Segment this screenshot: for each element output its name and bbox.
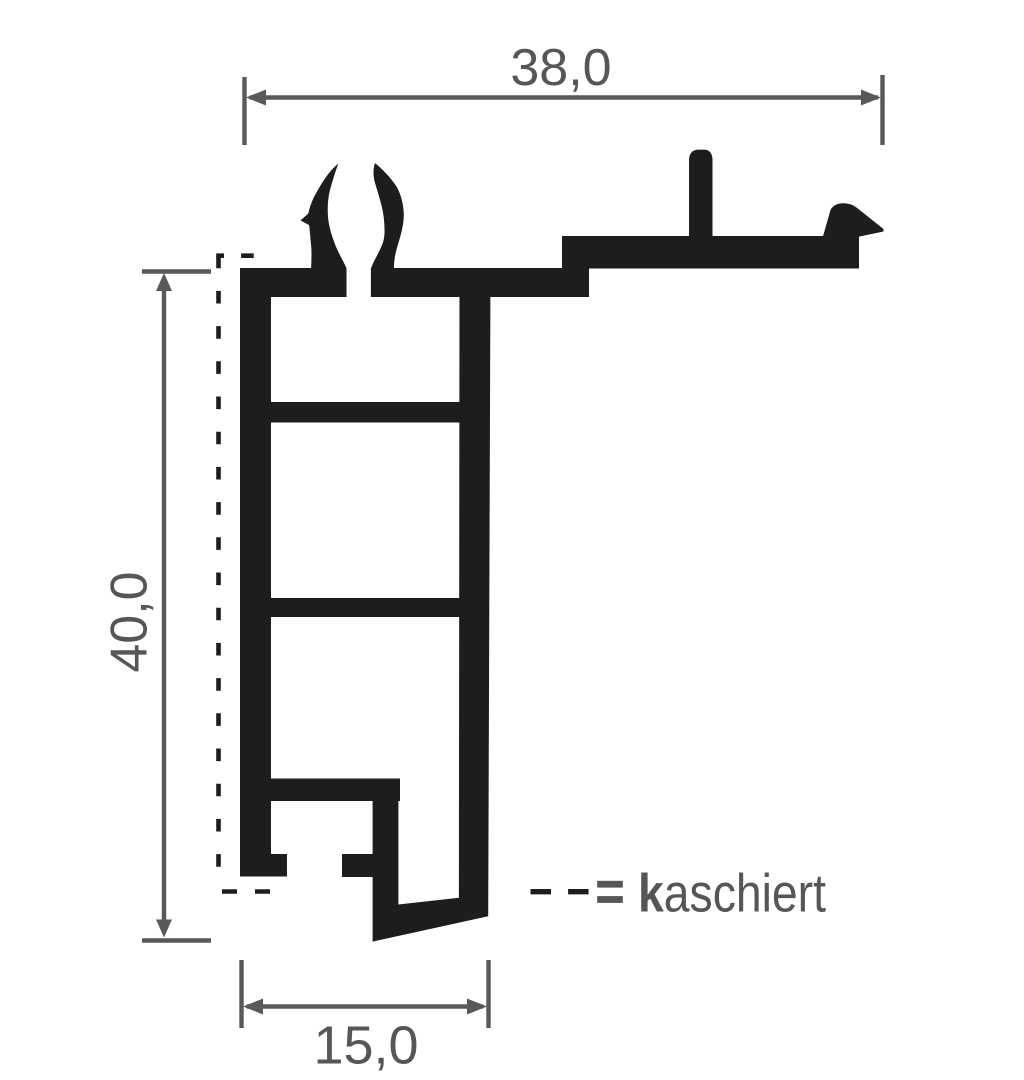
- svg-text:40,0: 40,0: [101, 571, 159, 672]
- svg-text:15,0: 15,0: [313, 1016, 418, 1076]
- svg-text:38,0: 38,0: [510, 39, 611, 97]
- svg-text:kaschiert: kaschiert: [638, 864, 826, 924]
